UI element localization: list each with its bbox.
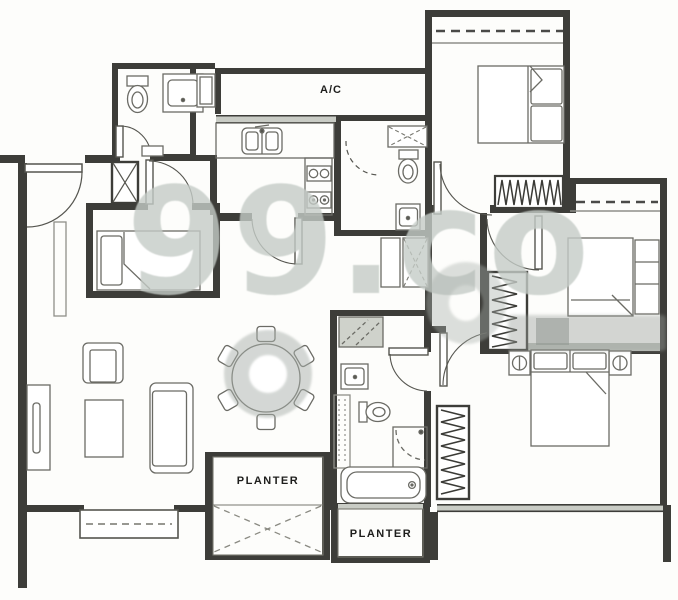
tv-console-icon xyxy=(27,385,50,470)
floor-plan: A/C PLANTER PLANTER 99.co xyxy=(0,0,678,600)
shelf-icon xyxy=(142,146,163,156)
bedside-cabinet-icon xyxy=(635,240,659,314)
shaft-x-icon xyxy=(403,238,428,287)
ac-ledge-label: A/C xyxy=(314,84,348,96)
door-swing-icon xyxy=(252,218,302,264)
wash-basin-icon xyxy=(341,364,368,389)
toilet-icon xyxy=(127,76,148,113)
planter-label-bottom: PLANTER xyxy=(338,528,424,540)
shower-ledge-icon xyxy=(388,126,427,147)
single-bed-icon xyxy=(97,231,200,290)
wardrobe-icon xyxy=(488,272,527,350)
double-bed-icon xyxy=(531,350,609,446)
wardrobe-icon xyxy=(495,176,563,208)
vanity-counter-icon xyxy=(339,317,383,347)
dining-chair-icon xyxy=(257,327,275,342)
nightstand-lamp-icon xyxy=(609,351,631,375)
planter-label-left: PLANTER xyxy=(213,475,323,487)
foyer-cabinet-icon xyxy=(54,222,66,316)
kitchen-sink-icon xyxy=(242,125,282,154)
double-bed-icon xyxy=(478,66,564,143)
bathtub-icon xyxy=(341,467,426,503)
door-swing-icon xyxy=(389,348,428,391)
wardrobe-icon xyxy=(437,406,469,499)
armchair-icon xyxy=(83,343,123,383)
shower-icon xyxy=(393,427,427,468)
door-swing-icon xyxy=(25,164,82,227)
shower-door-icon xyxy=(346,141,379,175)
door-swing-icon xyxy=(146,160,193,205)
toilet-icon xyxy=(399,150,419,183)
dining-table-icon xyxy=(232,344,300,412)
stove-hob-icon xyxy=(307,166,331,208)
door-swing-icon xyxy=(434,162,492,215)
bay-window xyxy=(80,510,178,538)
planter-box-left xyxy=(213,457,323,555)
sofa-icon xyxy=(150,383,193,473)
nightstand-lamp-icon xyxy=(509,351,530,375)
door-swing-icon xyxy=(487,216,542,270)
toilet-icon xyxy=(359,402,390,422)
double-bed-icon xyxy=(568,238,633,316)
fridge-icon xyxy=(197,74,215,107)
wash-basin-icon xyxy=(396,204,420,230)
shaft-x-icon xyxy=(112,162,138,203)
dining-chair-icon xyxy=(257,415,275,430)
coffee-table-icon xyxy=(85,400,123,457)
